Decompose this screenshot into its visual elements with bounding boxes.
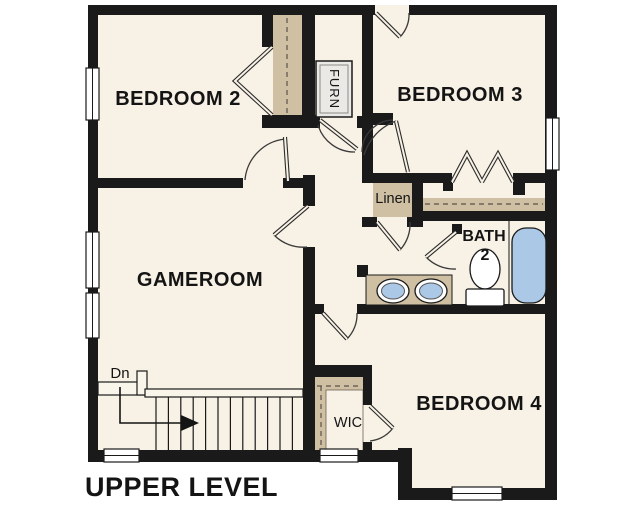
wall-wic-east-upper xyxy=(363,377,372,405)
window-bedroom3-east xyxy=(546,118,559,170)
wall-bath-north xyxy=(423,211,557,221)
wall-bedroom3-stub xyxy=(362,113,393,125)
window-stairs-south xyxy=(104,449,139,462)
wall-gameroom-east-upper xyxy=(303,175,315,206)
wall-bedroom4-jamb xyxy=(315,304,324,314)
furnace-label: FURN xyxy=(327,69,342,109)
sink-right-icon xyxy=(415,279,447,303)
window-gameroom-west-lower xyxy=(86,293,99,338)
toilet-tank-icon xyxy=(466,289,504,306)
wall-closet-nub-right xyxy=(513,183,525,195)
wall-bedroom4-step xyxy=(398,448,412,500)
wall-exterior-right xyxy=(545,5,557,500)
bathtub-icon xyxy=(512,228,546,303)
wall-wic-north xyxy=(303,365,372,377)
sink-left-icon xyxy=(377,279,409,303)
linen-label: Linen xyxy=(375,191,410,207)
window-bedroom4-south xyxy=(452,487,502,500)
gameroom-label: GAMEROOM xyxy=(137,269,263,291)
wall-gameroom-east-lower xyxy=(303,247,315,452)
page-title: UPPER LEVEL xyxy=(85,472,278,502)
floor-plan-page: Dn FURN BEDROOM 2 BEDROOM 3 GAMEROOM BED… xyxy=(0,0,640,512)
bedroom3-closet-shelf xyxy=(423,198,545,212)
window-gameroom-west-upper xyxy=(86,232,99,288)
wall-bedroom3-south-a xyxy=(362,173,452,183)
wall-bedroom3-south-b xyxy=(513,173,545,183)
window-bedroom2-west xyxy=(86,68,99,120)
stair-down-label: Dn xyxy=(110,365,129,382)
bath2-label-line2: 2 xyxy=(481,247,490,264)
wic-label: WIC xyxy=(334,415,362,431)
bath2-label-line1: BATH xyxy=(462,228,505,245)
wall-closet-nub-left xyxy=(443,183,453,191)
bedroom4-label: BEDROOM 4 xyxy=(416,393,542,415)
floor-plan-drawing: Dn FURN BEDROOM 2 BEDROOM 3 GAMEROOM BED… xyxy=(0,0,640,512)
wall-exterior-top-left xyxy=(88,5,375,15)
window-wic-south xyxy=(320,449,358,462)
stair-railing xyxy=(145,389,303,397)
furnace-unit: FURN xyxy=(316,61,352,117)
wall-bedroom3-west xyxy=(362,15,373,183)
wall-wic-east-lower xyxy=(363,442,372,451)
wall-linen-stub-right xyxy=(407,217,423,227)
wall-bedroom2-south-a xyxy=(88,178,243,188)
wall-closet-east xyxy=(302,15,315,118)
wall-exterior-top-right xyxy=(409,5,557,15)
bedroom2-label: BEDROOM 2 xyxy=(115,88,241,110)
bedroom3-label: BEDROOM 3 xyxy=(397,84,523,106)
wall-linen-stub-left xyxy=(362,217,377,227)
wall-closet-west xyxy=(262,15,273,47)
